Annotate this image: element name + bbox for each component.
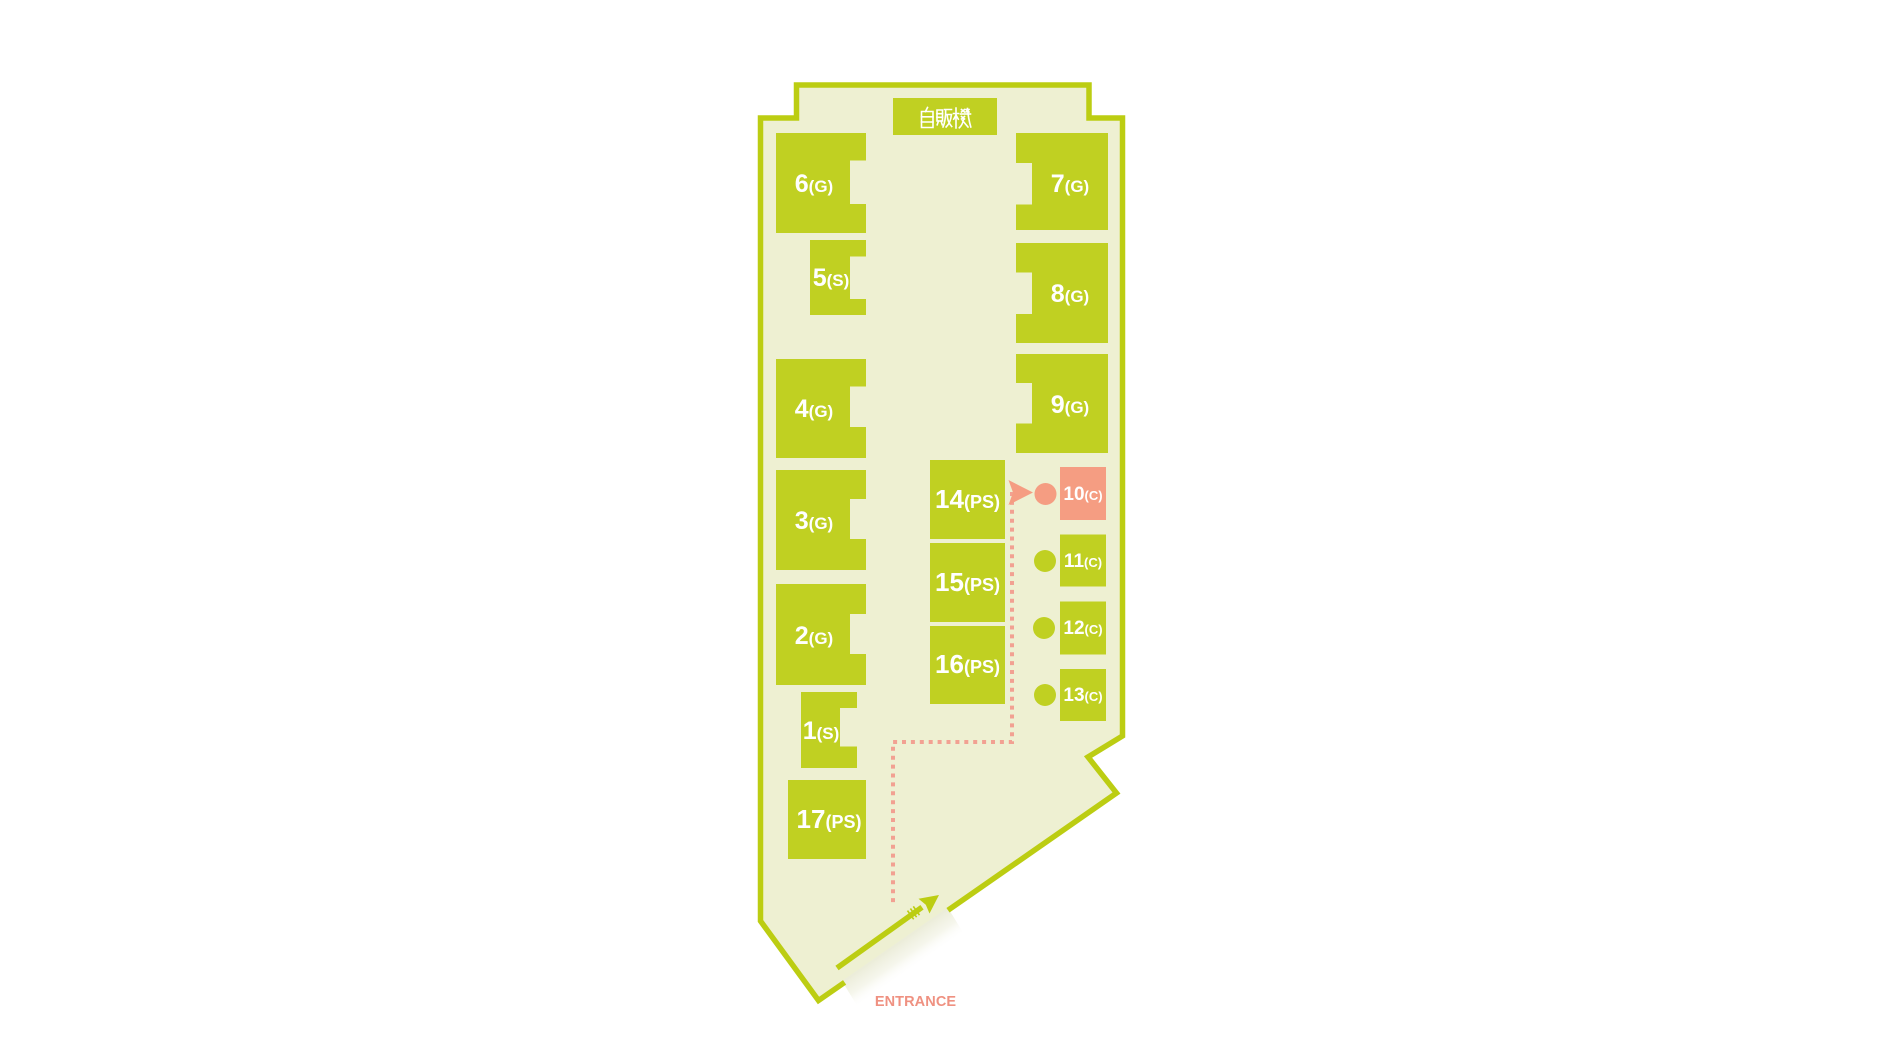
svg-text:ENTRANCE: ENTRANCE xyxy=(875,994,957,1010)
svg-text:10(C): 10(C) xyxy=(1063,484,1102,505)
svg-text:13(C): 13(C) xyxy=(1063,685,1102,706)
svg-text:12(C): 12(C) xyxy=(1063,618,1102,639)
svg-text:11(C): 11(C) xyxy=(1064,551,1102,572)
